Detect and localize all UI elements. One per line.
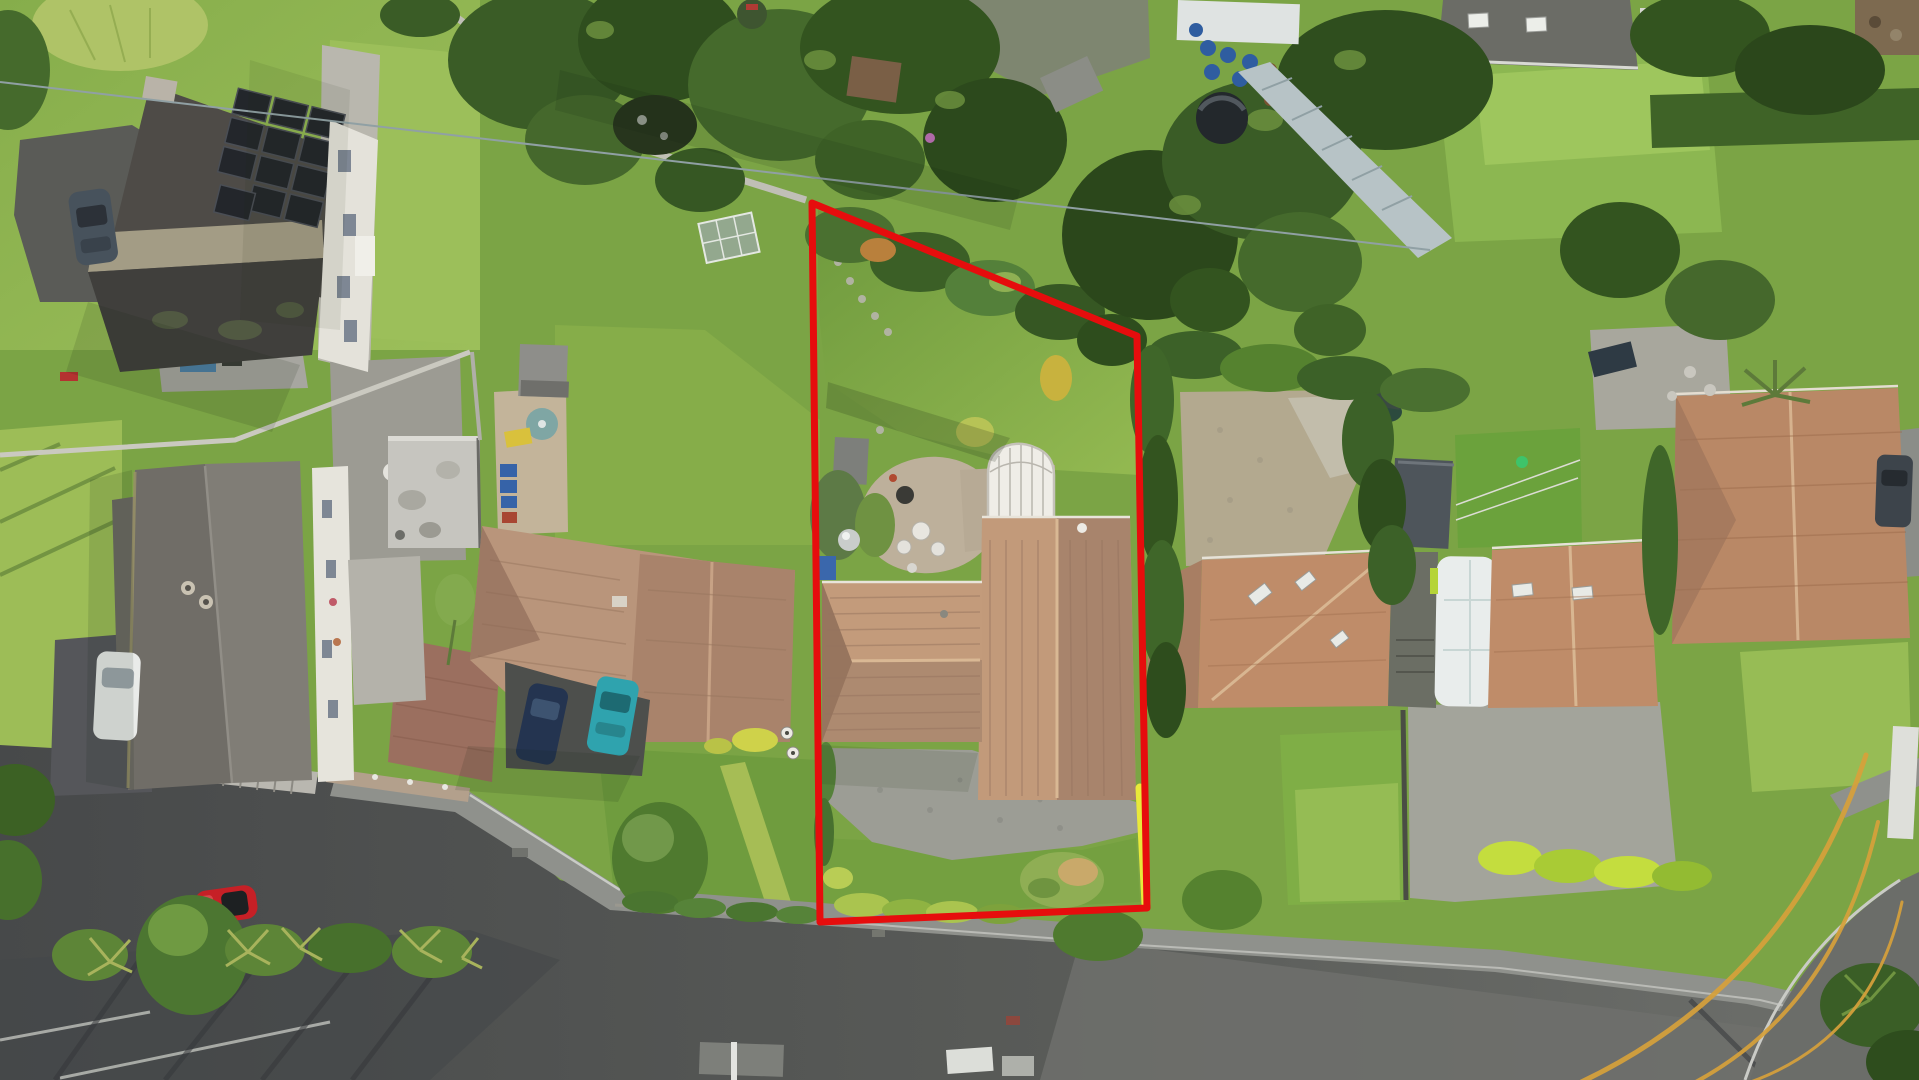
dark-car-far-east xyxy=(1875,454,1913,527)
far-east-house xyxy=(1672,386,1910,644)
mirror-ball xyxy=(838,529,860,551)
aerial-photo xyxy=(0,0,1919,1080)
flat-garage-roof xyxy=(388,436,480,548)
brown-shed xyxy=(846,56,901,103)
sapling xyxy=(435,574,475,626)
chimney xyxy=(612,596,627,607)
white-caravan xyxy=(1434,556,1497,707)
white-outbuilding xyxy=(1177,0,1300,44)
blue-bins xyxy=(818,556,836,580)
autumn-tree xyxy=(1020,852,1104,908)
